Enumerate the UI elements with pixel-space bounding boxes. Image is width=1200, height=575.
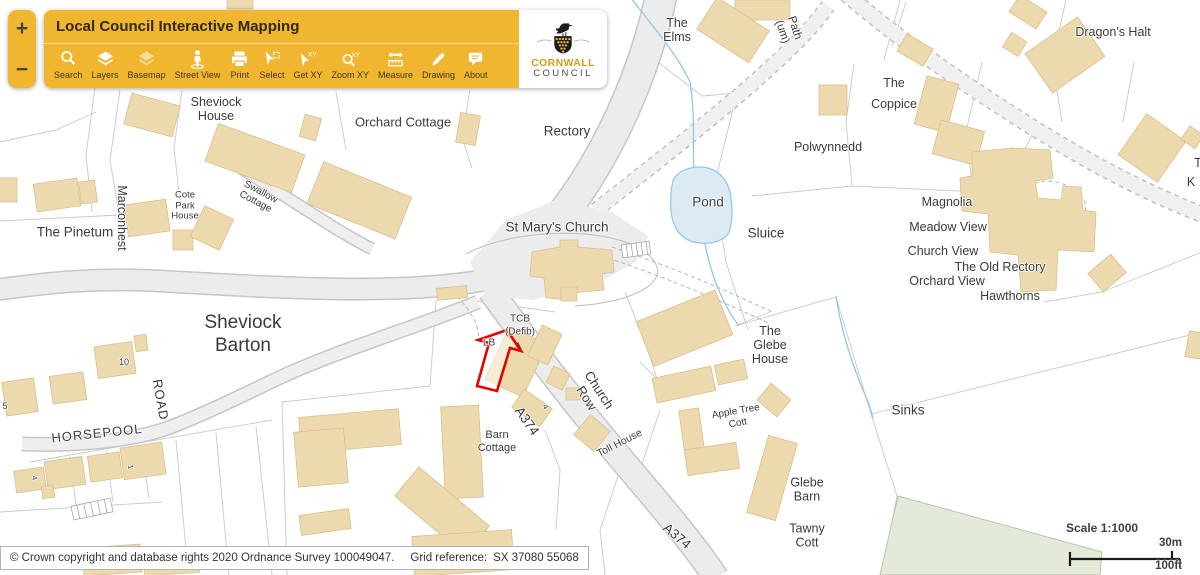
get-xy-icon: XY: [297, 49, 318, 69]
about-icon: [465, 49, 486, 69]
tool-street-view[interactable]: Street View: [174, 49, 222, 80]
footer-bar: © Crown copyright and database rights 20…: [0, 546, 589, 570]
search-icon: [58, 49, 79, 69]
tool-label: Print: [231, 70, 250, 80]
local-council-mapping-app: TheElmsPath(um)Dragon's HaltTheCoppicePo…: [0, 0, 1200, 575]
scale-imperial: 100ft: [1142, 560, 1182, 572]
zoom-xy-icon: XY: [340, 49, 361, 69]
basemap-icon: [136, 49, 157, 69]
logo-line1: CORNWALL: [531, 57, 595, 69]
tool-get-xy[interactable]: XYGet XY: [292, 49, 323, 80]
main-toolbar: Local Council Interactive Mapping Search…: [44, 10, 607, 88]
tool-label: Zoom XY: [331, 70, 369, 80]
grid-ref-value: SX 37080 55068: [493, 552, 579, 564]
zoom-in-button[interactable]: +: [8, 16, 36, 41]
tool-about[interactable]: About: [463, 49, 489, 80]
tool-search[interactable]: Search: [53, 49, 84, 80]
zoom-out-button[interactable]: −: [8, 57, 36, 82]
tool-basemap[interactable]: Basemap: [127, 49, 167, 80]
tool-label: Street View: [175, 70, 221, 80]
tool-label: Search: [54, 70, 83, 80]
tool-label: About: [464, 70, 488, 80]
tool-zoom-xy[interactable]: XYZoom XY: [330, 49, 370, 80]
grid-ref-label: Grid reference:: [410, 552, 487, 564]
print-icon: [229, 49, 250, 69]
scale-text: Scale 1:1000: [1066, 521, 1138, 535]
tool-label: Drawing: [422, 70, 455, 80]
tool-label: Get XY: [293, 70, 322, 80]
tool-label: Layers: [92, 70, 119, 80]
cornwall-council-logo[interactable]: CORNWALL COUNCIL: [519, 10, 607, 88]
zoom-control: + −: [8, 10, 36, 88]
drawing-icon: [428, 49, 449, 69]
tool-drawing[interactable]: Drawing: [421, 49, 456, 80]
tool-measure[interactable]: Measure: [377, 49, 414, 80]
svg-text:XY: XY: [308, 52, 317, 59]
scale-metric: 30m: [1150, 537, 1182, 549]
tool-label: Measure: [378, 70, 413, 80]
logo-line2: COUNCIL: [533, 69, 593, 80]
tool-print[interactable]: Print: [228, 49, 251, 80]
cornwall-crest-icon: [534, 21, 592, 57]
tool-select[interactable]: Select: [258, 49, 285, 80]
select-icon: [261, 49, 282, 69]
measure-icon: [385, 49, 406, 69]
tool-layers[interactable]: Layers: [91, 49, 120, 80]
tool-label: Basemap: [128, 70, 166, 80]
copyright-text: © Crown copyright and database rights 20…: [10, 552, 394, 564]
tool-label: Select: [259, 70, 284, 80]
pond-shape: [671, 167, 732, 243]
street-view-icon: [187, 49, 208, 69]
green-field: [880, 496, 1102, 575]
layers-icon: [95, 49, 116, 69]
svg-text:XY: XY: [351, 52, 360, 59]
